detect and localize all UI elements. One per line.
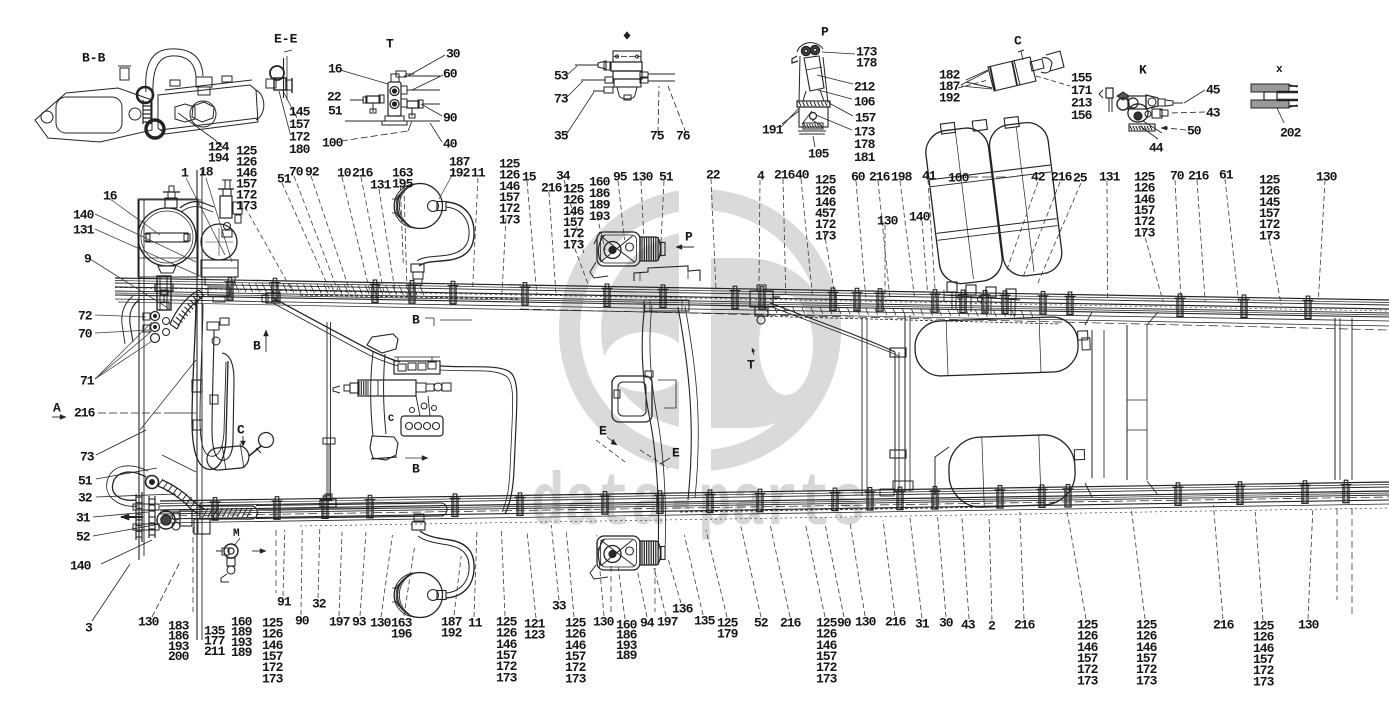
svg-text:196: 196 bbox=[391, 626, 413, 641]
svg-text:31: 31 bbox=[915, 616, 930, 631]
svg-text:92: 92 bbox=[305, 164, 320, 179]
svg-text:91: 91 bbox=[277, 594, 292, 609]
svg-text:43: 43 bbox=[1206, 105, 1221, 120]
svg-text:173: 173 bbox=[496, 670, 518, 685]
svg-text:216: 216 bbox=[1014, 617, 1036, 632]
svg-text:52: 52 bbox=[76, 529, 91, 544]
svg-text:51: 51 bbox=[328, 103, 343, 118]
svg-text:130: 130 bbox=[877, 213, 899, 228]
svg-text:195: 195 bbox=[392, 176, 414, 191]
svg-text:94: 94 bbox=[640, 615, 655, 630]
svg-text:15: 15 bbox=[522, 169, 537, 184]
svg-text:data-parts: data-parts bbox=[531, 463, 865, 547]
svg-text:130: 130 bbox=[632, 169, 654, 184]
svg-text:E: E bbox=[599, 423, 607, 438]
svg-text:179: 179 bbox=[717, 626, 739, 641]
svg-text:60: 60 bbox=[851, 169, 866, 184]
svg-text:E: E bbox=[672, 445, 680, 460]
svg-text:105: 105 bbox=[808, 146, 830, 161]
svg-text:131: 131 bbox=[370, 177, 392, 192]
svg-text:157: 157 bbox=[855, 110, 876, 125]
svg-text:216: 216 bbox=[774, 167, 796, 182]
svg-text:189: 189 bbox=[231, 645, 253, 660]
svg-text:73: 73 bbox=[80, 449, 95, 464]
svg-text:B: B bbox=[253, 338, 261, 353]
svg-text:192: 192 bbox=[449, 165, 471, 180]
svg-text:70: 70 bbox=[1170, 168, 1185, 183]
svg-text:71: 71 bbox=[80, 373, 95, 388]
svg-text:140: 140 bbox=[70, 558, 92, 573]
svg-text:4: 4 bbox=[757, 168, 765, 183]
svg-text:11: 11 bbox=[471, 165, 486, 180]
svg-text:40: 40 bbox=[795, 167, 810, 182]
svg-text:156: 156 bbox=[1071, 108, 1093, 123]
svg-text:B-B: B-B bbox=[82, 50, 106, 65]
svg-text:93: 93 bbox=[352, 614, 367, 629]
svg-text:130: 130 bbox=[1298, 617, 1320, 632]
svg-text:A: A bbox=[53, 400, 61, 415]
svg-text:30: 30 bbox=[939, 615, 954, 630]
svg-text:76: 76 bbox=[676, 128, 691, 143]
svg-text:32: 32 bbox=[312, 596, 327, 611]
svg-text:M: M bbox=[233, 528, 240, 540]
svg-text:90: 90 bbox=[295, 613, 310, 628]
svg-text:173: 173 bbox=[565, 671, 587, 686]
svg-text:216: 216 bbox=[1188, 168, 1210, 183]
svg-text:197: 197 bbox=[329, 614, 350, 629]
svg-text:216: 216 bbox=[780, 615, 802, 630]
svg-text:50: 50 bbox=[1187, 123, 1202, 138]
svg-text:194: 194 bbox=[208, 151, 230, 166]
svg-text:70: 70 bbox=[78, 326, 93, 341]
svg-text:106: 106 bbox=[854, 94, 876, 109]
svg-text:95: 95 bbox=[613, 169, 628, 184]
svg-text:x: x bbox=[1276, 64, 1283, 76]
svg-text:198: 198 bbox=[891, 169, 913, 184]
svg-text:173: 173 bbox=[563, 237, 585, 252]
svg-text:C: C bbox=[388, 414, 394, 425]
svg-text:11: 11 bbox=[468, 615, 483, 630]
svg-text:200: 200 bbox=[168, 649, 190, 664]
svg-text:T: T bbox=[747, 357, 755, 372]
svg-text:53: 53 bbox=[554, 68, 569, 83]
svg-text:10: 10 bbox=[337, 165, 352, 180]
svg-text:130: 130 bbox=[593, 614, 615, 629]
svg-text:41: 41 bbox=[922, 168, 937, 183]
svg-text:K: K bbox=[1139, 62, 1147, 77]
svg-text:216: 216 bbox=[1051, 169, 1073, 184]
svg-text:42: 42 bbox=[1031, 169, 1046, 184]
svg-text:43: 43 bbox=[961, 617, 976, 632]
svg-text:192: 192 bbox=[441, 625, 463, 640]
svg-text:16: 16 bbox=[103, 188, 118, 203]
svg-text:130: 130 bbox=[1316, 169, 1338, 184]
svg-text:216: 216 bbox=[1213, 617, 1235, 632]
svg-text:32: 32 bbox=[78, 490, 93, 505]
svg-text:173: 173 bbox=[1259, 228, 1281, 243]
svg-text:1: 1 bbox=[181, 165, 189, 180]
svg-text:131: 131 bbox=[73, 222, 95, 237]
svg-text:52: 52 bbox=[754, 615, 769, 630]
svg-text:216: 216 bbox=[885, 614, 907, 629]
svg-text:173: 173 bbox=[815, 228, 837, 243]
svg-text:173: 173 bbox=[1253, 674, 1275, 689]
svg-text:189: 189 bbox=[616, 648, 638, 663]
svg-text:100: 100 bbox=[948, 170, 970, 185]
svg-text:33: 33 bbox=[552, 598, 567, 613]
svg-text:72: 72 bbox=[78, 308, 93, 323]
svg-text:45: 45 bbox=[1206, 82, 1221, 97]
svg-text:3: 3 bbox=[85, 620, 93, 635]
svg-text:130: 130 bbox=[138, 614, 160, 629]
svg-text:192: 192 bbox=[939, 90, 961, 105]
svg-text:100: 100 bbox=[322, 135, 344, 150]
svg-text:44: 44 bbox=[1149, 140, 1164, 155]
svg-text:173: 173 bbox=[1134, 225, 1156, 240]
svg-text:202: 202 bbox=[1280, 125, 1302, 140]
svg-text:B: B bbox=[412, 461, 420, 476]
svg-text:173: 173 bbox=[499, 212, 521, 227]
svg-text:2: 2 bbox=[988, 618, 996, 633]
svg-text:75: 75 bbox=[650, 128, 665, 143]
svg-text:P: P bbox=[821, 24, 829, 39]
svg-text:51: 51 bbox=[659, 169, 674, 184]
svg-text:173: 173 bbox=[816, 671, 838, 686]
svg-text:131: 131 bbox=[1099, 169, 1121, 184]
svg-text:25: 25 bbox=[1073, 170, 1088, 185]
svg-text:40: 40 bbox=[443, 136, 458, 151]
svg-text:211: 211 bbox=[204, 644, 226, 659]
svg-text:212: 212 bbox=[854, 79, 876, 94]
svg-text:130: 130 bbox=[370, 615, 392, 630]
svg-text:70: 70 bbox=[289, 164, 304, 179]
svg-text:216: 216 bbox=[869, 169, 891, 184]
svg-text:181: 181 bbox=[854, 150, 876, 165]
svg-text:P: P bbox=[685, 229, 693, 244]
svg-text:197: 197 bbox=[657, 614, 678, 629]
svg-text:173: 173 bbox=[236, 198, 258, 213]
svg-text:135: 135 bbox=[694, 613, 716, 628]
svg-text:B: B bbox=[412, 312, 420, 327]
svg-text:173: 173 bbox=[1136, 673, 1158, 688]
svg-text:180: 180 bbox=[289, 142, 311, 157]
svg-text:30: 30 bbox=[446, 46, 461, 61]
svg-text:9: 9 bbox=[84, 251, 92, 266]
svg-text:173: 173 bbox=[262, 671, 284, 686]
svg-text:191: 191 bbox=[762, 122, 784, 137]
svg-text:T: T bbox=[386, 36, 394, 51]
svg-text:35: 35 bbox=[554, 128, 569, 143]
svg-text:31: 31 bbox=[76, 510, 91, 525]
svg-text:73: 73 bbox=[554, 91, 569, 106]
svg-text:16: 16 bbox=[328, 61, 343, 76]
svg-text:E-E: E-E bbox=[274, 31, 298, 46]
svg-text:90: 90 bbox=[837, 615, 852, 630]
svg-text:C: C bbox=[1014, 33, 1022, 48]
svg-text:178: 178 bbox=[856, 56, 878, 71]
svg-text:22: 22 bbox=[706, 167, 721, 182]
svg-text:60: 60 bbox=[443, 66, 458, 81]
svg-text:140: 140 bbox=[909, 209, 931, 224]
svg-text:51: 51 bbox=[78, 473, 93, 488]
svg-text:130: 130 bbox=[855, 614, 877, 629]
svg-text:136: 136 bbox=[672, 601, 694, 616]
svg-text:193: 193 bbox=[589, 209, 611, 224]
svg-text:22: 22 bbox=[327, 89, 342, 104]
svg-text:C: C bbox=[237, 422, 245, 437]
svg-text:216: 216 bbox=[74, 405, 96, 420]
svg-text:140: 140 bbox=[73, 207, 95, 222]
svg-text:61: 61 bbox=[1219, 167, 1234, 182]
svg-text:173: 173 bbox=[1077, 673, 1099, 688]
svg-text:123: 123 bbox=[524, 627, 546, 642]
svg-text:18: 18 bbox=[199, 164, 214, 179]
svg-text:90: 90 bbox=[443, 110, 458, 125]
